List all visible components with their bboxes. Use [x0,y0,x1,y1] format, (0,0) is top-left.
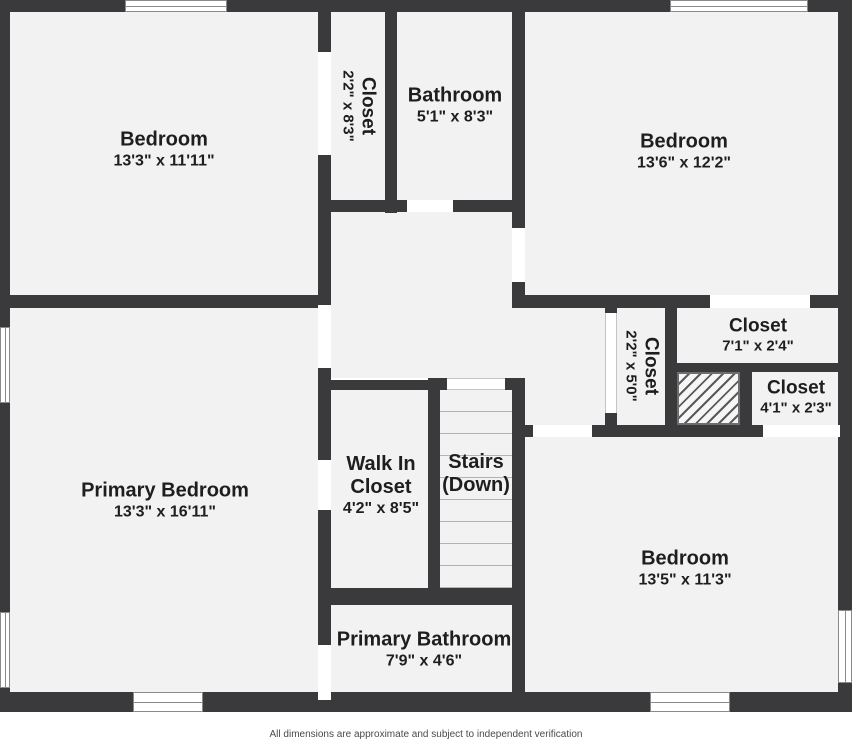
label-bedroom-bottom-right: Bedroom 13'5" x 11'3" [638,548,731,591]
room-name: Primary Bathroom [337,629,512,652]
hatched-chimney-area [677,372,740,425]
door-opening-closet-top [318,52,331,155]
room-name: Closet [722,316,793,338]
hatch-pattern [679,374,738,423]
room-dims: 13'3" x 11'11" [113,152,214,172]
wall-bathroom-left [385,0,397,213]
room-dims: 7'1" x 2'4" [722,338,793,357]
label-stairs: Stairs (Down) [442,451,510,497]
door-opening-primary-hallway [318,305,331,368]
room-name-line1: Walk In [343,453,419,476]
room-dims: 13'5" x 11'3" [638,571,731,591]
label-closet-41: Closet 4'1" x 2'3" [760,378,831,419]
door-opening-walk-in-closet [318,460,331,510]
label-closet-71: Closet 7'1" x 2'4" [722,316,793,357]
disclaimer-text: All dimensions are approximate and subje… [0,729,852,740]
door-opening-closet41 [763,425,840,437]
wall-outer-right [838,0,852,712]
window-bedroom-tr-top [670,0,808,12]
stairs-name: Stairs [442,451,510,474]
room-name: Closet [356,70,378,141]
label-bedroom-top-left: Bedroom 13'3" x 11'11" [113,129,214,172]
window-bedroom-br-bottom [650,692,730,712]
door-opening-closet50 [605,313,617,413]
room-dims: 2'2" x 5'0" [621,330,640,401]
room-dims: 7'9" x 4'6" [337,652,512,672]
room-dims: 4'2" x 8'5" [343,499,419,519]
window-primary-bedroom-left-upper [0,327,10,403]
label-closet-top: Closet 2'2" x 8'3" [338,70,379,141]
room-name: Closet [760,378,831,400]
room-name: Bedroom [638,548,731,571]
room-hallway-upper [331,212,525,378]
room-name: Bedroom [113,129,214,152]
room-name: Bathroom [408,85,502,108]
room-dims: 13'6" x 12'2" [637,154,731,174]
room-dims: 5'1" x 8'3" [408,108,502,128]
wall-wic-bathroom [318,588,525,605]
door-opening-primary-bathroom [318,645,331,700]
window-bedroom-br-right [838,610,852,683]
room-name: Bedroom [637,131,731,154]
door-opening-closet71 [710,295,810,308]
label-primary-bathroom: Primary Bathroom 7'9" x 4'6" [337,629,512,672]
room-name: Closet [639,330,661,401]
label-closet-50: Closet 2'2" x 5'0" [621,330,662,401]
window-bedroom-tl-top [125,0,227,12]
label-walk-in-closet: Walk In Closet 4'2" x 8'5" [343,453,419,519]
floor-plan: Bedroom 13'3" x 11'11" Closet 2'2" x 8'3… [0,0,852,712]
label-primary-bedroom: Primary Bedroom 13'3" x 16'11" [81,480,249,523]
window-primary-bedroom-left-lower [0,612,10,688]
wall-wic-right [428,380,440,593]
window-primary-bedroom-bottom [133,692,203,712]
room-hallway-corridor [523,308,605,425]
wall-mid-left-horizontal [0,295,331,308]
wall-wic-top [318,380,440,390]
stairs-direction: (Down) [442,474,510,497]
room-dims: 4'1" x 2'3" [760,400,831,419]
floor-plan-page: { "plan": { "title": "Second floor plan"… [0,0,852,742]
door-opening-bedroom-tr [512,228,525,282]
door-opening-bathroom [407,200,453,212]
stairs-open-entry [447,378,505,390]
room-dims: 2'2" x 8'3" [338,70,357,141]
room-name: Primary Bedroom [81,480,249,503]
wall-closet71-bottom [665,363,852,372]
room-dims: 13'3" x 16'11" [81,503,249,523]
door-opening-bedroom-br [533,425,592,437]
label-bathroom: Bathroom 5'1" x 8'3" [408,85,502,128]
room-name-line2: Closet [343,476,419,499]
label-bedroom-top-right: Bedroom 13'6" x 12'2" [637,131,731,174]
